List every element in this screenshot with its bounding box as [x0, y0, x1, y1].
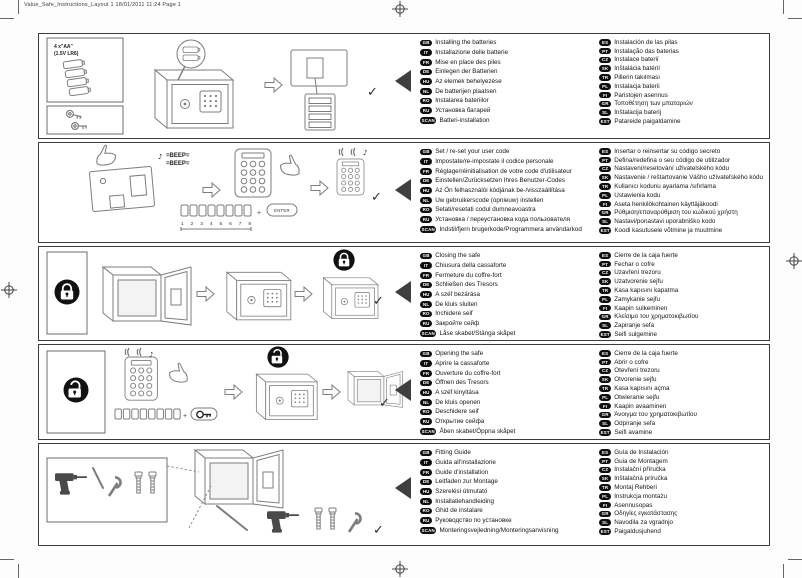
lang-row: ESTPaigaldusjuhend: [599, 527, 767, 536]
lang-badge-gb: GB: [420, 149, 432, 156]
lang-badge-est: EST: [599, 227, 611, 234]
lang-badge-pt: PT: [599, 458, 611, 465]
lang-badge-pt: PT: [599, 48, 611, 55]
lang-label: De kluis openen: [435, 399, 480, 406]
code-entry-strip: 1 2 3 4 5 6 7 8 + ENTER: [181, 204, 297, 231]
lang-label: Abrir o cofre: [614, 359, 648, 366]
lang-row: ITInstallazione delle batterie: [420, 48, 599, 58]
lang-badge-cz: CZ: [599, 166, 611, 173]
lang-row: SKInštalácia batérií: [599, 64, 767, 73]
language-column-1: GBSet / re-set your user codeITImpostate…: [411, 147, 599, 242]
lang-badge-tr: TR: [599, 385, 611, 392]
lang-badge-ru: RU: [420, 418, 432, 425]
lang-badge-ro: RO: [420, 311, 432, 318]
lang-label: Koodi kasutusele võtmine ja muutmine: [614, 227, 722, 234]
bolt-icon: [315, 508, 322, 529]
lang-row: PLInstrukcja montażu: [599, 492, 767, 501]
lang-label: Ghid de instalare: [435, 507, 483, 514]
lang-badge-scan: SCAN: [420, 428, 436, 435]
beep-text: =BEEP=: [166, 153, 190, 159]
language-column-2: ESInsertar o reinsertar su código secret…: [599, 147, 767, 242]
lang-label: Opening the safe: [435, 350, 483, 357]
lang-row: SKOtvorenie sejfu: [599, 375, 767, 384]
crop-mark: [783, 0, 784, 14]
lang-row: HUSzerelési útmutató: [420, 487, 599, 497]
lang-label: Szerelési útmutató: [435, 488, 487, 495]
lang-row: GBOpening the safe: [420, 349, 599, 359]
lang-badge-tr: TR: [599, 484, 611, 491]
lang-row: ITChiusura della cassaforte: [420, 261, 599, 271]
lang-badge-gr: GR: [599, 314, 611, 321]
lang-row: SCANLåse skabet/Stänga skåpet: [420, 329, 599, 339]
lang-label: Odpiranje sefa: [614, 420, 655, 427]
lang-badge-hu: HU: [420, 187, 432, 194]
lang-badge-scan: SCAN: [420, 330, 436, 337]
lang-row: FRMise en place des piles: [420, 57, 599, 67]
language-column-2: ESCierre de la caja fuertePTAbrir o cofr…: [599, 349, 767, 439]
lang-badge-fr: FR: [420, 272, 432, 279]
check-mark: ✓: [379, 396, 390, 411]
lang-label: Zamykanie sejfu: [614, 296, 660, 303]
lang-label: Montaj Rehberi: [614, 484, 657, 491]
lang-row: TRKullanıcı kodunu ayarlama /sıfırlama: [599, 182, 767, 191]
lang-label: Instalacja baterii: [614, 83, 660, 90]
lang-label: Instalace baterií: [614, 56, 658, 63]
lang-label: De kluis sluiten: [435, 301, 477, 308]
lang-label: Inchidere seif: [435, 310, 472, 317]
lang-row: DEEinstellen/Zurücksetzen Ihres Benutzer…: [420, 176, 599, 186]
lang-label: Låse skabet/Stänga skåpet: [439, 330, 515, 337]
lang-row: FIAseta henkilökohtainen käyttäjäkoodi: [599, 200, 767, 209]
step-arrow-icon: [311, 181, 328, 195]
lang-label: Cierre de la caja fuerte: [614, 350, 678, 357]
lang-badge-de: DE: [420, 479, 432, 486]
lang-row: GBSet / re-set your user code: [420, 147, 599, 157]
digit-labels: 1 2 3 4 5 6 7 8: [181, 221, 251, 227]
lang-label: Fitting Guide: [435, 449, 471, 456]
lang-label: Az elemek behelyezése: [435, 78, 502, 85]
lang-label: Instrukcja montażu: [614, 493, 667, 500]
lang-row: ROGhid de instalare: [420, 506, 599, 516]
lang-row: RUУстановка / переустановка кода пользов…: [420, 215, 599, 225]
crop-mark: [788, 559, 802, 560]
lang-badge-hu: HU: [420, 389, 432, 396]
lang-label: Ρύθμιση/επαναρύθμιση του κωδικού χρήστη: [614, 209, 738, 216]
lang-label: Ouverture du coffre-fort: [435, 370, 500, 377]
lang-row: ESGuía de Instalación: [599, 448, 767, 457]
fold-mark-triangle: [395, 70, 411, 92]
lang-row: ESInsertar o reinsertar su código secret…: [599, 147, 767, 156]
lang-label: Kaapin sulkeminen: [614, 305, 667, 312]
lang-row: ESTKoodi kasutusele võtmine ja muutmine: [599, 226, 767, 235]
lang-label: Impostate/re-impostate il codice persona…: [435, 158, 553, 165]
lang-row: SCANIndstil/fjern brugerkode/Programmera…: [420, 225, 599, 235]
lang-badge-pl: PL: [599, 192, 611, 199]
lang-row: DEÖffnen des Tresors: [420, 378, 599, 388]
lang-label: Guida all'installazione: [435, 459, 496, 466]
lang-badge-est: EST: [599, 331, 611, 338]
lang-badge-fi: FI: [599, 305, 611, 312]
lang-row: ESTPatareide paigaldamine: [599, 117, 767, 126]
lang-row: RODeschidere seif: [420, 407, 599, 417]
lang-row: FIKaapin avaaminen: [599, 402, 767, 411]
lang-badge-gr: GR: [599, 101, 611, 108]
lang-row: TRKasa kapısını açma: [599, 384, 767, 393]
lang-row: PTFechar o cofre: [599, 260, 767, 269]
lang-row: ROSetati/resetati codul dumneavoastra: [420, 205, 599, 215]
lang-badge-es: ES: [599, 252, 611, 259]
lang-badge-pl: PL: [599, 493, 611, 500]
lang-row: DESchließen des Tresors: [420, 280, 599, 290]
mounting-guide-line: [167, 466, 199, 472]
lang-label: Paigaldusjuhend: [614, 528, 661, 535]
lang-row: FRFermeture du coffre-fort: [420, 270, 599, 280]
lang-label: Nastavenie / reštartovanie Vášho užívate…: [614, 174, 763, 181]
enter-label: ENTER: [274, 208, 290, 213]
lang-badge-it: IT: [420, 459, 432, 466]
plus-sign: +: [183, 413, 187, 420]
lang-row: GBClosing the safe: [420, 251, 599, 261]
lang-label: A széf kinyitása: [435, 389, 478, 396]
lang-label: Chiusura della cassaforte: [435, 262, 506, 269]
lang-row: FRGuide d'installation: [420, 467, 599, 477]
lang-row: PLOtwieranie sejfu: [599, 393, 767, 402]
language-column-2: ESInstalación de las pilasPTInstalação d…: [599, 38, 767, 138]
lang-badge-fr: FR: [420, 168, 432, 175]
lang-row: SLZapiranje sefa: [599, 321, 767, 330]
safe-icon: [256, 374, 317, 419]
battery-compartment: [307, 58, 323, 78]
lang-badge-sk: SK: [599, 65, 611, 72]
lang-label: Zapiranje sefa: [614, 322, 654, 329]
lang-label: Τοποθέτηση των μπαταριών: [614, 100, 693, 107]
lang-label: Monteringsvejledning/Monteringsanvisning: [439, 527, 558, 534]
lang-label: Réglage/réinitialisation de votre code d…: [435, 168, 572, 175]
lang-badge-ro: RO: [420, 98, 432, 105]
lang-badge-it: IT: [420, 360, 432, 367]
section-installing-batteries: 4 x"AA" (1.5V LR6) ✓: [38, 33, 770, 139]
lang-label: Seifi avamine: [614, 429, 652, 436]
lang-label: Uzavření trezoru: [614, 269, 661, 276]
lang-badge-nl: NL: [420, 498, 432, 505]
lang-row: PTDefina/redefina o seu código de utiliz…: [599, 156, 767, 165]
lang-row: FIAsennusopas: [599, 501, 767, 510]
lang-label: Άνοιγμα του χρηματοκιβωτίου: [614, 411, 697, 418]
lang-badge-pl: PL: [599, 83, 611, 90]
lang-row: FRRéglage/réinitialisation de votre code…: [420, 166, 599, 176]
lang-row: HUA széf kinyitása: [420, 388, 599, 398]
lang-row: HUAz Ön felhasználói kódjának be-/vissza…: [420, 186, 599, 196]
lang-label: Öffnen des Tresors: [435, 379, 488, 386]
lang-badge-hu: HU: [420, 488, 432, 495]
lang-row: ITGuida all'installazione: [420, 458, 599, 468]
lang-label: Inštalacija baterij: [614, 109, 661, 116]
lang-row: CZNastavení/resetování uživatelského kód…: [599, 165, 767, 174]
lang-row: CZInstalace baterií: [599, 56, 767, 65]
keypad-icon: [125, 357, 157, 400]
lang-label: Einstellen/Zurücksetzen Ihres Benutzer-C…: [435, 177, 565, 184]
lang-label: Einlegen der Batterien: [435, 68, 497, 75]
lang-row: RUРуководство по установке: [420, 516, 599, 526]
lang-badge-scan: SCAN: [420, 527, 436, 534]
lang-badge-est: EST: [599, 118, 611, 125]
check-mark: ✓: [373, 523, 384, 538]
lang-label: Nastavi/ponastavi uporabniško kodo: [614, 218, 715, 225]
lang-label: Instalación de las pilas: [614, 39, 677, 46]
lang-label: Inštalačná príručka: [614, 475, 667, 482]
lang-label: Paristojen asennus: [614, 92, 668, 99]
lang-row: DELeitfaden zur Montage: [420, 477, 599, 487]
lang-row: DEEinlegen der Batterien: [420, 67, 599, 77]
lang-label: Fermeture du coffre-fort: [435, 272, 501, 279]
lang-badge-de: DE: [420, 69, 432, 76]
lang-label: Закройте сейф: [435, 320, 479, 327]
lang-badge-est: EST: [599, 528, 611, 535]
beep-text: =BEEP=: [166, 161, 190, 167]
lang-label: Aseta henkilökohtainen käyttäjäkoodi: [614, 201, 718, 208]
lang-label: Installatiehandleiding: [435, 498, 494, 505]
lang-badge-cz: CZ: [599, 270, 611, 277]
lang-badge-fr: FR: [420, 59, 432, 66]
lang-badge-it: IT: [420, 158, 432, 165]
illustration-installing-batteries: 4 x"AA" (1.5V LR6) ✓: [39, 34, 411, 138]
lang-badge-sk: SK: [599, 376, 611, 383]
lang-badge-fi: FI: [599, 201, 611, 208]
lang-row: ESTSeifi avamine: [599, 428, 767, 437]
lang-badge-ro: RO: [420, 207, 432, 214]
safe-open-icon: [195, 450, 283, 508]
check-mark: ✓: [373, 294, 384, 309]
lang-row: SCANMonteringsvejledning/Monteringsanvis…: [420, 526, 599, 536]
lang-badge-cz: CZ: [599, 368, 611, 375]
hand-icon: [97, 145, 116, 165]
lang-badge-fr: FR: [420, 370, 432, 377]
illustration-closing-the-safe: ✓: [39, 247, 411, 340]
lang-label: Leitfaden zur Montage: [435, 478, 498, 485]
marker-pen-icon: [217, 506, 247, 530]
lang-badge-sl: SL: [599, 420, 611, 427]
lang-row: GRΤοποθέτηση των μπαταριών: [599, 100, 767, 109]
lang-label: Guía de Instalación: [614, 449, 668, 456]
lang-badge-ru: RU: [420, 517, 432, 524]
lang-label: De batterijen plaatsen: [435, 88, 496, 95]
lang-label: Pillerin takılması: [614, 74, 660, 81]
lang-label: Открытие сейфа: [435, 418, 484, 425]
crop-mark: [18, 0, 19, 14]
lang-badge-cz: CZ: [599, 467, 611, 474]
lang-row: NLDe batterijen plaatsen: [420, 86, 599, 96]
battery-cell: [309, 98, 331, 104]
lang-badge-hu: HU: [420, 291, 432, 298]
lang-row: ESCierre de la caja fuerte: [599, 251, 767, 260]
lang-badge-scan: SCAN: [420, 117, 436, 124]
lang-label: Mise en place des piles: [435, 59, 500, 66]
lang-badge-fr: FR: [420, 469, 432, 476]
lang-row: SCANBatteri-installation: [420, 116, 599, 126]
beep-icon: [351, 148, 355, 156]
lang-row: PTGuia de Montagem: [599, 457, 767, 466]
lang-badge-fi: FI: [599, 502, 611, 509]
registration-mark: [392, 1, 408, 17]
crop-mark: [18, 564, 19, 578]
registration-mark: [392, 561, 408, 577]
battery-icon: [183, 47, 200, 53]
lang-label: Indstil/fjern brugerkode/Programmera anv…: [439, 226, 581, 233]
lang-row: SLInštalacija baterij: [599, 108, 767, 117]
battery-spec-text: (1.5V LR6): [54, 51, 79, 57]
section-closing-the-safe: ✓ GBClosing the safeITChiusura della cas…: [38, 246, 770, 341]
language-column-1: GBOpening the safeITAprire la cassaforte…: [411, 349, 599, 439]
crop-mark: [0, 18, 14, 19]
lang-label: Åben skabet/Öppna skåpet: [439, 428, 515, 435]
language-column-1: GBFitting GuideITGuida all'installazione…: [411, 448, 599, 545]
lang-badge-it: IT: [420, 262, 432, 269]
lang-label: Κλείσιμο του χρηματοκιβωτίου: [614, 313, 698, 320]
lang-label: Installazione delle batterie: [435, 49, 508, 56]
lang-badge-sk: SK: [599, 475, 611, 482]
code-entry-strip: +: [115, 408, 217, 420]
keys-panel: [47, 106, 123, 134]
lang-row: NLUw gebruikerscode (opnieuw) instellen: [420, 195, 599, 205]
lang-badge-pt: PT: [599, 261, 611, 268]
lang-row: ROInchidere seif: [420, 309, 599, 319]
lock-closed-icon: [55, 280, 80, 305]
lang-label: Руководство по установке: [435, 517, 511, 524]
lang-badge-gb: GB: [420, 253, 432, 260]
lang-row: GBFitting Guide: [420, 448, 599, 458]
lang-badge-gr: GR: [599, 412, 611, 419]
lang-row: TRMontaj Rehberi: [599, 483, 767, 492]
lang-label: Closing the safe: [435, 252, 480, 259]
lang-row: ITAprire la cassaforte: [420, 359, 599, 369]
lang-label: Set / re-set your user code: [435, 148, 509, 155]
safe-icon: [155, 70, 233, 128]
lang-label: Seifi sulgemine: [614, 331, 657, 338]
lang-label: Kasa kapısını açma: [614, 385, 669, 392]
check-mark: ✓: [367, 85, 378, 100]
step-arrow-icon: [265, 78, 282, 92]
lang-badge-sk: SK: [599, 278, 611, 285]
lang-badge-pt: PT: [599, 359, 611, 366]
fold-mark-triangle: [395, 281, 411, 303]
lang-badge-de: DE: [420, 380, 432, 387]
music-note-icon: ♪: [363, 149, 367, 157]
lang-row: HUA széf bezárása: [420, 290, 599, 300]
music-note-icon: ♪: [158, 153, 162, 161]
lang-label: Az Ön felhasználói kódjának be-/visszaál…: [435, 187, 565, 194]
lang-label: Aprire la cassaforte: [435, 360, 489, 367]
lang-badge-gb: GB: [420, 351, 432, 358]
lang-badge-es: ES: [599, 350, 611, 357]
lang-row: CZUzavření trezoru: [599, 269, 767, 278]
lang-label: Asennusopas: [614, 502, 652, 509]
plus-sign: +: [257, 210, 261, 217]
lang-label: Instalační příručka: [614, 466, 665, 473]
lang-badge-nl: NL: [420, 301, 432, 308]
lang-row: RUОткрытие сейфа: [420, 417, 599, 427]
lang-badge-gb: GB: [420, 450, 432, 457]
lang-badge-hu: HU: [420, 78, 432, 85]
lang-row: PLZamykanie sejfu: [599, 295, 767, 304]
hand-icon: [170, 363, 188, 382]
lang-badge-est: EST: [599, 429, 611, 436]
lang-badge-sl: SL: [599, 519, 611, 526]
lang-row: TRKasa kapısını kapatma: [599, 286, 767, 295]
lang-badge-nl: NL: [420, 88, 432, 95]
lang-label: Inštalácia batérií: [614, 65, 660, 72]
step-arrow-icon: [225, 385, 242, 399]
lang-row: SLOdpiranje sefa: [599, 419, 767, 428]
lang-label: Fechar o cofre: [614, 261, 655, 268]
beep-icon: [339, 148, 343, 156]
lang-row: FIParistojen asennus: [599, 91, 767, 100]
lang-label: Otevření trezoru: [614, 367, 660, 374]
step-arrow-icon: [197, 287, 214, 301]
lang-label: Kullanıcı kodunu ayarlama /sıfırlama: [614, 183, 716, 190]
lang-row: PLInstalacja baterii: [599, 82, 767, 91]
safe-icon: [323, 278, 378, 319]
lang-row: RUУстановка батарей: [420, 106, 599, 116]
lang-row: TRPillerin takılması: [599, 73, 767, 82]
lang-row: ROInstalarea bateriilor: [420, 96, 599, 106]
crop-mark: [783, 564, 784, 578]
lang-badge-pl: PL: [599, 394, 611, 401]
step-arrow-icon: [323, 385, 340, 399]
lang-badge-sl: SL: [599, 322, 611, 329]
safe-icon: [227, 272, 291, 320]
lang-row: NLInstallatiehandleiding: [420, 496, 599, 506]
lang-label: Cierre de la caja fuerte: [614, 252, 678, 259]
crop-mark: [788, 18, 802, 19]
keypad-icon: [235, 149, 271, 197]
lang-label: Kaapin avaaminen: [614, 403, 666, 410]
lang-row: FROuverture du coffre-fort: [420, 368, 599, 378]
door-reset-button: [89, 145, 154, 211]
lang-badge-fi: FI: [599, 92, 611, 99]
lang-badge-nl: NL: [420, 399, 432, 406]
lang-label: Installing the batteries: [435, 39, 496, 46]
lang-badge-it: IT: [420, 49, 432, 56]
lang-label: Deschidere seif: [435, 408, 478, 415]
lang-label: Instalarea bateriilor: [435, 97, 489, 104]
lang-badge-fi: FI: [599, 403, 611, 410]
lang-badge-sk: SK: [599, 174, 611, 181]
battery-cell: [309, 122, 331, 128]
lang-badge-ro: RO: [420, 409, 432, 416]
keypad-icon: [337, 159, 364, 195]
lang-label: Установка / переустановка кода пользоват…: [435, 216, 570, 223]
lang-label: Defina/redefina o seu código de utilizad…: [614, 157, 730, 164]
lang-badge-sl: SL: [599, 218, 611, 225]
fold-mark-triangle: [395, 179, 411, 201]
illustration-set-user-code: ♪ =BEEP= =BEEP= 1 2 3 4 5 6 7 8 + ENTER: [39, 143, 411, 242]
lang-row: NLDe kluis openen: [420, 397, 599, 407]
lang-label: Batteri-installation: [439, 117, 489, 124]
hand-icon: [281, 155, 300, 175]
lang-badge-ru: RU: [420, 107, 432, 114]
illustration-opening-the-safe: ♪ + ✓: [39, 345, 411, 439]
wrench-icon: [349, 513, 361, 532]
lang-badge-scan: SCAN: [420, 226, 436, 233]
lang-label: Instalação das baterias: [614, 48, 679, 55]
section-set-user-code: ♪ =BEEP= =BEEP= 1 2 3 4 5 6 7 8 + ENTER: [38, 142, 770, 243]
lang-badge-ro: RO: [420, 508, 432, 515]
lang-label: Insertar o reinsertar su código secreto: [614, 148, 720, 155]
lang-badge-tr: TR: [599, 183, 611, 190]
lang-badge-gr: GR: [599, 511, 611, 518]
lang-row: SKUzatvorenie sejfu: [599, 277, 767, 286]
print-job-header: Value_Safe_Instructions_Layout 1 18/01/2…: [24, 2, 181, 8]
